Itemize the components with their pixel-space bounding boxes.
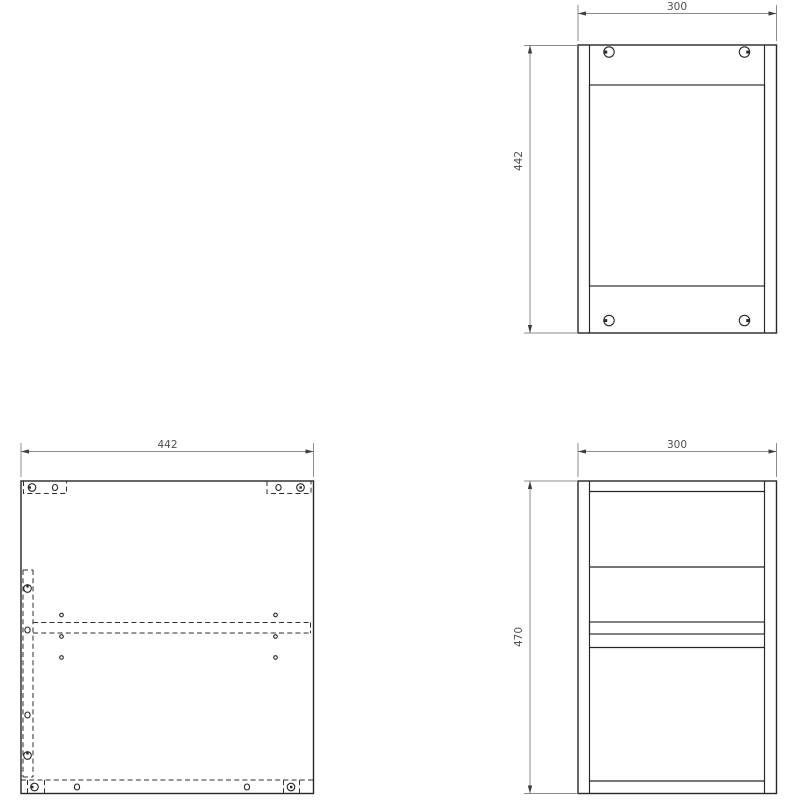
panel-width-dimension: 442 <box>21 439 314 477</box>
side-width-dimension: 300 <box>578 439 777 477</box>
cam-lock-icon <box>24 752 32 760</box>
side-outer-panel <box>578 481 777 794</box>
side-width-label: 300 <box>667 439 687 451</box>
cam-lock-icon <box>24 585 32 593</box>
cam-lock-icon <box>604 315 614 325</box>
cam-lock-icon <box>31 783 39 791</box>
hidden-edge-left-strip <box>23 570 33 777</box>
front-height-label: 442 <box>513 151 525 171</box>
side-middle-rail <box>590 622 765 634</box>
pilot-hole-icon <box>274 635 278 639</box>
technical-drawing-sheet: 300 442 <box>0 0 800 800</box>
drawing-svg: 300 442 <box>0 0 800 800</box>
panel-width-label: 442 <box>157 439 177 451</box>
hidden-edge-bottom-cam-boxes <box>28 780 300 794</box>
front-width-label: 300 <box>667 1 687 13</box>
pilot-hole-icon <box>60 656 64 660</box>
pilot-hole-icon <box>60 635 64 639</box>
cam-lock-icon <box>28 484 36 492</box>
dowel-hole-icon <box>276 485 281 491</box>
dowel-hole-icon <box>25 712 30 718</box>
side-height-label: 470 <box>513 627 525 647</box>
cam-lock-icon <box>604 47 614 57</box>
dowel-hole-icon <box>74 784 79 790</box>
pilot-hole-icon <box>60 613 64 617</box>
cam-lock-icon <box>739 47 749 57</box>
front-width-dimension: 300 <box>578 1 777 41</box>
pilot-hole-icon <box>274 613 278 617</box>
side-view: 300 470 <box>513 439 777 794</box>
hidden-edge-middle-rail <box>33 623 311 634</box>
dowel-hole-icon <box>244 784 249 790</box>
cam-lock-icon <box>287 783 295 791</box>
pilot-hole-icon <box>274 656 278 660</box>
front-inner-opening <box>590 85 765 286</box>
dowel-hole-icon <box>52 485 57 491</box>
cam-lock-icon <box>739 315 749 325</box>
front-height-dimension: 442 <box>513 46 578 334</box>
dowel-hole-icon <box>25 627 30 633</box>
cam-lock-icon <box>297 484 305 492</box>
front-outer-panel <box>578 45 777 333</box>
front-view: 300 442 <box>513 1 777 333</box>
side-height-dimension: 470 <box>513 481 578 794</box>
panel-view: 442 <box>21 439 314 794</box>
panel-outline <box>21 481 314 794</box>
